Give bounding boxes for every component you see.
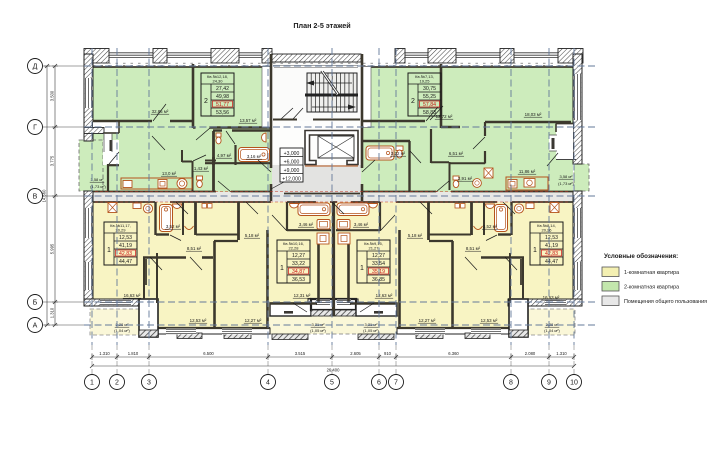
svg-text:(1,05 м²): (1,05 м²) [310,328,326,333]
svg-text:44,47: 44,47 [119,259,132,265]
svg-text:20,26: 20,26 [541,227,552,232]
svg-text:Помещения общего пользования: Помещения общего пользования [624,299,707,305]
svg-text:1: 1 [360,265,364,272]
svg-text:55,25: 55,25 [423,94,436,100]
svg-text:53,56: 53,56 [216,110,229,116]
svg-text:51,77: 51,77 [216,102,229,108]
svg-text:1: 1 [90,379,94,386]
svg-text:6: 6 [377,379,381,386]
svg-text:+6,000: +6,000 [284,159,300,165]
svg-text:4: 4 [266,379,270,386]
svg-text:3.515: 3.515 [295,351,306,356]
svg-text:18,03 м²: 18,03 м² [525,112,542,117]
svg-text:4,97 м²: 4,97 м² [217,153,232,158]
svg-text:21,27: 21,27 [368,245,379,250]
svg-text:10: 10 [570,379,578,386]
svg-text:6.360: 6.360 [448,351,459,356]
svg-text:6.500: 6.500 [203,351,214,356]
svg-text:34,87: 34,87 [292,269,305,275]
svg-text:2,91 м²: 2,91 м² [458,176,473,181]
svg-text:27,42: 27,42 [216,86,229,92]
svg-text:32,85 м²: 32,85 м² [152,109,169,114]
svg-text:19,25: 19,25 [419,78,430,83]
svg-text:12,27: 12,27 [292,253,305,259]
svg-text:44,47: 44,47 [545,259,558,265]
svg-text:49,98: 49,98 [216,94,229,100]
svg-text:12,72 м²: 12,72 м² [436,114,453,119]
svg-text:3.500: 3.500 [50,90,55,101]
svg-text:24,30: 24,30 [212,78,223,83]
svg-text:6,51 м²: 6,51 м² [449,151,464,156]
svg-text:8: 8 [509,379,513,386]
svg-text:13,0 м²: 13,0 м² [162,171,177,176]
svg-text:2: 2 [411,98,415,105]
svg-text:36,53: 36,53 [292,277,305,283]
svg-text:8,51 м²: 8,51 м² [187,246,202,251]
svg-text:3,31 м²: 3,31 м² [312,322,326,327]
svg-text:2.605: 2.605 [350,351,361,356]
svg-text:Б: Б [33,299,38,306]
svg-text:3,16 м²: 3,16 м² [247,154,262,159]
svg-text:2: 2 [204,98,208,105]
svg-text:1: 1 [533,247,537,254]
svg-text:26.400: 26.400 [327,368,340,373]
svg-text:5.995: 5.995 [50,243,55,254]
svg-text:Условные обозначения:: Условные обозначения: [604,253,678,260]
svg-text:12,53: 12,53 [119,235,132,241]
svg-text:41,19: 41,19 [119,243,132,249]
svg-text:3,28 м²: 3,28 м² [546,322,560,327]
svg-text:13,57 м²: 13,57 м² [240,118,257,123]
svg-text:1.310: 1.310 [50,307,55,318]
svg-text:3: 3 [147,379,151,386]
svg-text:+12,000: +12,000 [282,176,301,182]
svg-text:1: 1 [280,265,284,272]
svg-text:В: В [33,193,38,200]
svg-text:5,18 м²: 5,18 м² [245,233,260,238]
svg-text:5: 5 [330,379,334,386]
svg-text:8,51 м²: 8,51 м² [466,246,481,251]
svg-text:16,53 м²: 16,53 м² [543,295,560,300]
svg-text:3,52 м²: 3,52 м² [166,224,181,229]
svg-text:12,53: 12,53 [545,235,558,241]
svg-text:1-комнатная квартира: 1-комнатная квартира [624,270,679,276]
svg-text:3.775: 3.775 [50,155,55,166]
svg-text:(1,04 м²): (1,04 м²) [544,328,560,333]
svg-text:3,28 м²: 3,28 м² [116,322,130,327]
svg-text:+3,000: +3,000 [284,151,300,157]
svg-text:12,53 м²: 12,53 м² [481,318,498,323]
svg-text:Г: Г [33,124,37,131]
svg-text:+9,000: +9,000 [284,168,300,174]
svg-text:1,43 м²: 1,43 м² [194,166,209,171]
svg-text:1.810: 1.810 [128,351,139,356]
svg-text:30,75: 30,75 [423,86,436,92]
svg-text:3,58 м²: 3,58 м² [560,174,574,179]
svg-text:57,84: 57,84 [423,102,436,108]
svg-text:12,53 м²: 12,53 м² [190,318,207,323]
svg-text:2: 2 [115,379,119,386]
svg-text:1: 1 [107,247,111,254]
svg-text:33,22: 33,22 [292,261,305,267]
svg-text:41,19: 41,19 [545,243,558,249]
svg-text:3,46 м²: 3,46 м² [299,222,314,227]
svg-text:3,52 м²: 3,52 м² [483,224,498,229]
svg-text:12,27 м²: 12,27 м² [245,318,262,323]
svg-text:12,63 м²: 12,63 м² [376,293,393,298]
svg-text:910: 910 [384,351,392,356]
svg-text:3,46 м²: 3,46 м² [354,222,369,227]
svg-text:12,31 м²: 12,31 м² [294,293,311,298]
svg-text:3,58 м²: 3,58 м² [91,177,105,182]
svg-text:2.080: 2.080 [525,351,536,356]
svg-text:16,63 м²: 16,63 м² [124,293,141,298]
svg-text:5,18 м²: 5,18 м² [408,233,423,238]
svg-text:12,27 м²: 12,27 м² [419,318,436,323]
svg-text:3,22 м²: 3,22 м² [391,151,406,156]
svg-text:3,31 м²: 3,31 м² [365,322,379,327]
svg-text:42,83: 42,83 [119,251,132,257]
svg-text:2-комнатная квартира: 2-комнатная квартира [624,285,679,291]
svg-text:1.310: 1.310 [556,351,567,356]
svg-text:(1,73 м²): (1,73 м²) [90,184,106,189]
svg-text:11,86 м²: 11,86 м² [519,169,536,174]
svg-text:42,83: 42,83 [545,251,558,257]
svg-text:Д: Д [33,63,38,70]
svg-text:58,83: 58,83 [423,110,436,116]
svg-text:1.310: 1.310 [99,351,110,356]
svg-text:(1,73 м²): (1,73 м²) [558,181,574,186]
svg-text:22,28: 22,28 [288,245,299,250]
svg-text:7: 7 [394,379,398,386]
svg-text:А: А [33,322,38,329]
svg-text:План 2-5 этажей: План 2-5 этажей [293,21,350,30]
svg-text:(1,05 м²): (1,05 м²) [363,328,379,333]
svg-text:9: 9 [547,379,551,386]
